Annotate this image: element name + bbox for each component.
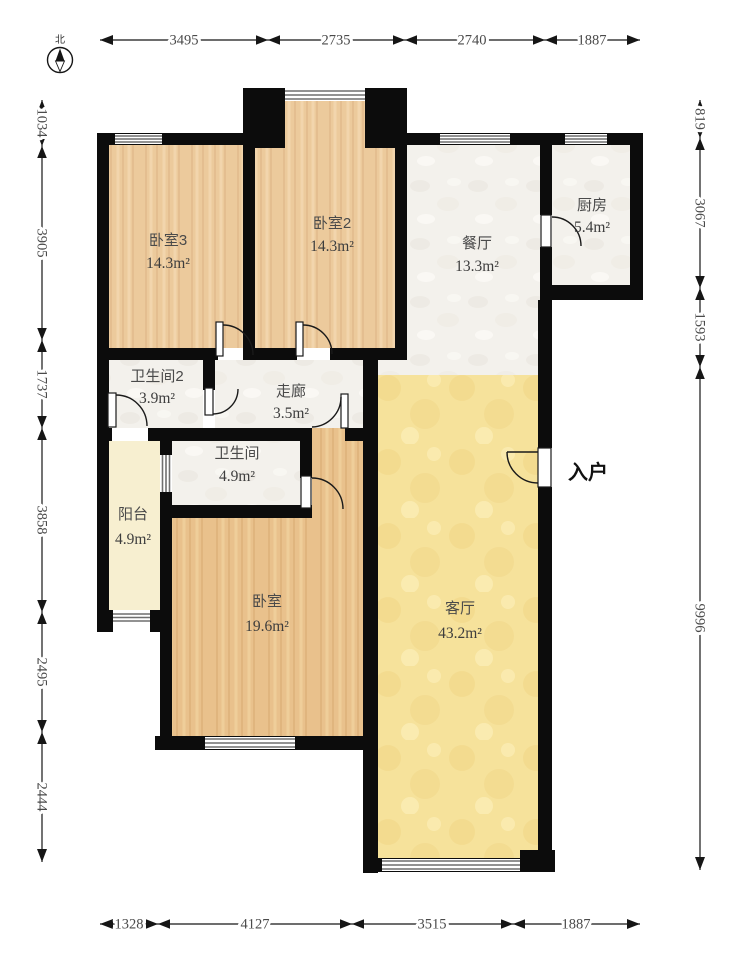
- dim-top-4: 1887: [578, 33, 607, 49]
- dining-floor-strip: [378, 360, 540, 375]
- compass-north-icon: 北: [48, 34, 73, 73]
- dim-bottom-4: 1887: [562, 917, 591, 933]
- bath2-area: 3.9m²: [139, 390, 175, 407]
- dim-right-3: 1593: [692, 313, 708, 342]
- bedroom3-label: 卧室3: [149, 232, 187, 249]
- dim-bottom-1: 1328: [115, 917, 144, 933]
- bedroom-label: 卧室: [252, 593, 282, 610]
- bedroom-area: 19.6m²: [245, 618, 289, 635]
- dining-label: 餐厅: [462, 235, 492, 252]
- corridor-label: 走廊: [276, 383, 306, 400]
- balcony-area: 4.9m²: [115, 531, 151, 548]
- dimension-right: 819 3067 1593 9996: [692, 100, 708, 870]
- entry-label: 入户: [568, 460, 608, 484]
- dimension-left: 1034 3905 1737 3858 2495 2444: [34, 100, 50, 862]
- dim-top-1: 3495: [170, 33, 199, 49]
- dim-left-5: 2495: [34, 658, 50, 687]
- dim-left-3: 1737: [34, 370, 50, 399]
- dining-floor: [407, 145, 540, 360]
- dim-left-4: 3858: [34, 506, 50, 535]
- bedroom-window: [205, 737, 295, 749]
- bath2-label: 卫生间2: [130, 368, 183, 385]
- balcony-label: 阳台: [118, 506, 148, 523]
- balcony-floor: [109, 441, 160, 610]
- kitchen-window: [565, 134, 607, 144]
- kitchen-label: 厨房: [577, 197, 607, 214]
- living-window: [382, 859, 520, 871]
- dim-left-1: 1034: [34, 109, 50, 139]
- dim-top-3: 2740: [458, 33, 487, 49]
- bedroom-floor-notch: [312, 428, 363, 518]
- dimension-bottom: 1328 4127 3515 1887: [100, 917, 640, 933]
- floor-plan: 卧室3 14.3m² 卧室2 14.3m² 餐厅 13.3m² 厨房 5.4m²…: [0, 0, 738, 967]
- balcony-side-window: [160, 455, 172, 492]
- bedroom3-window: [115, 134, 162, 144]
- bedroom3-area: 14.3m²: [146, 255, 190, 272]
- living-label: 客厅: [445, 600, 475, 617]
- bedroom2-floor-bay: [285, 101, 365, 147]
- dim-top-2: 2735: [322, 33, 351, 49]
- living-area: 43.2m²: [438, 625, 482, 642]
- dimension-top: 3495 2735 2740 1887: [100, 33, 640, 49]
- bedroom2-window: [285, 89, 365, 101]
- dim-right-4: 9996: [692, 604, 708, 633]
- balcony-rail-window: [113, 612, 150, 623]
- dim-left-6: 2444: [34, 783, 50, 813]
- corridor-area: 3.5m²: [273, 405, 309, 422]
- bedroom2-label: 卧室2: [313, 215, 351, 232]
- bath-area: 4.9m²: [219, 468, 255, 485]
- dim-left-2: 3905: [34, 229, 50, 258]
- dining-area: 13.3m²: [455, 258, 499, 275]
- kitchen-area: 5.4m²: [574, 219, 610, 236]
- dining-window: [440, 134, 510, 144]
- compass-north-label: 北: [55, 34, 65, 46]
- dim-bottom-2: 4127: [241, 917, 270, 933]
- bath-label: 卫生间: [214, 445, 259, 462]
- kitchen-floor: [552, 145, 630, 285]
- dim-right-1: 819: [692, 108, 708, 130]
- dim-bottom-3: 3515: [418, 917, 447, 933]
- bedroom2-area: 14.3m²: [310, 238, 354, 255]
- dim-right-2: 3067: [692, 199, 708, 228]
